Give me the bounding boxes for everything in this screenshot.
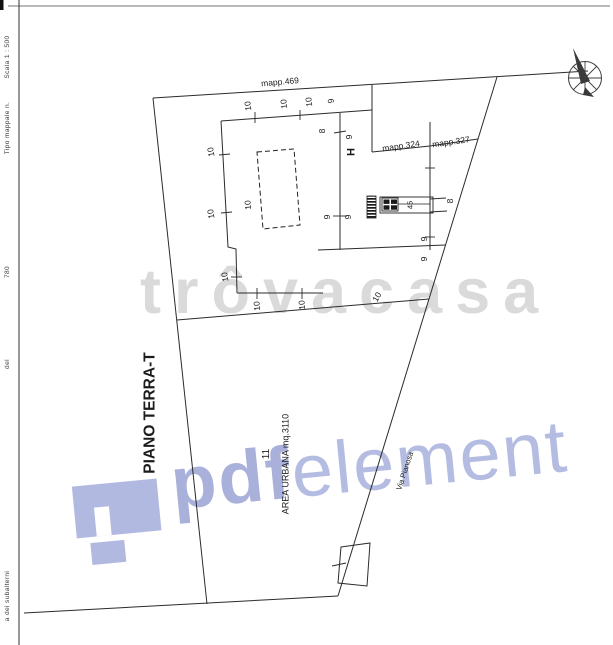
dim-label: 9: [344, 215, 353, 220]
dim-label: 9: [326, 98, 335, 104]
dim-label: 10: [371, 291, 383, 303]
dim-label: 8: [318, 129, 327, 134]
scanned-cadastral-plan: trôvacasa pdfelement: [0, 0, 613, 645]
dim-label: 10: [220, 272, 230, 283]
margin-note: Tipo mappale n.: [5, 102, 12, 154]
well-symbol: H: [347, 148, 358, 156]
parcel-label: mapp.327: [432, 135, 471, 149]
parcel-number: 11: [262, 449, 272, 459]
parcel-label: mapp.324: [382, 139, 421, 153]
dim-label: 10: [252, 301, 261, 311]
dim-label: 10: [243, 200, 252, 210]
dim-label: 10: [297, 300, 306, 310]
dim-label: 10: [243, 101, 253, 111]
margin-note: Scala 1 : 500: [5, 35, 12, 78]
road-label: Via Pianosa: [395, 451, 414, 491]
floor-title: PIANO TERRA-T: [142, 352, 158, 473]
dim-label: 10: [279, 99, 289, 109]
area-label: AREA URBANA mq.3110: [282, 414, 291, 514]
dim-label: 9: [323, 215, 332, 220]
dim-label: 10: [206, 147, 216, 158]
margin-note: a dei subalterni: [5, 571, 12, 621]
dim-label: 10: [206, 209, 216, 220]
plan-labels: PIANO TERRA-Tmapp.469mapp.324mapp.327101…: [0, 0, 613, 645]
dim-label: 9: [420, 237, 429, 242]
margin-note: del: [5, 359, 12, 369]
dim-label: 10: [304, 97, 314, 107]
dim-label: 8: [446, 199, 455, 204]
parcel-label: mapp.469: [261, 76, 299, 88]
dim-label: 45: [406, 201, 414, 209]
dim-label: 9: [345, 135, 354, 140]
margin-note: 780: [5, 266, 12, 278]
dim-label: 9: [420, 257, 429, 262]
